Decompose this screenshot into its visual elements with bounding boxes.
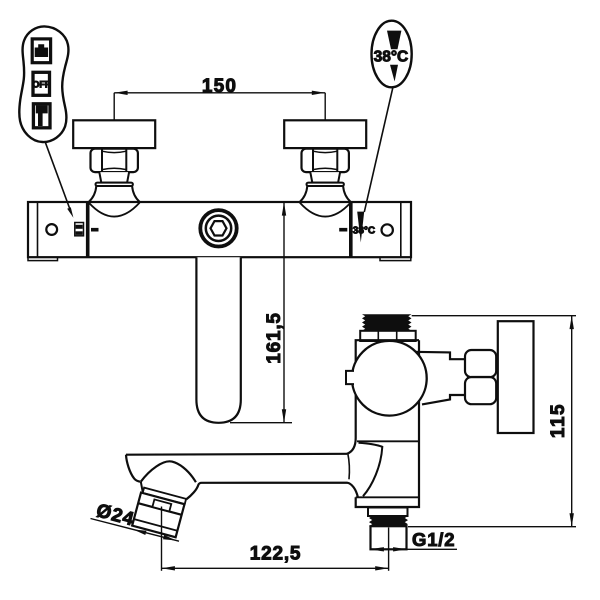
svg-text:G1/2: G1/2 bbox=[412, 529, 455, 550]
svg-text:38°C: 38°C bbox=[353, 225, 375, 236]
svg-text:161,5: 161,5 bbox=[264, 312, 285, 364]
svg-text:OFF: OFF bbox=[32, 79, 50, 89]
svg-text:115: 115 bbox=[548, 403, 569, 438]
svg-text:150: 150 bbox=[202, 76, 237, 97]
svg-text:38°C: 38°C bbox=[374, 49, 409, 66]
svg-text:122,5: 122,5 bbox=[250, 544, 302, 565]
